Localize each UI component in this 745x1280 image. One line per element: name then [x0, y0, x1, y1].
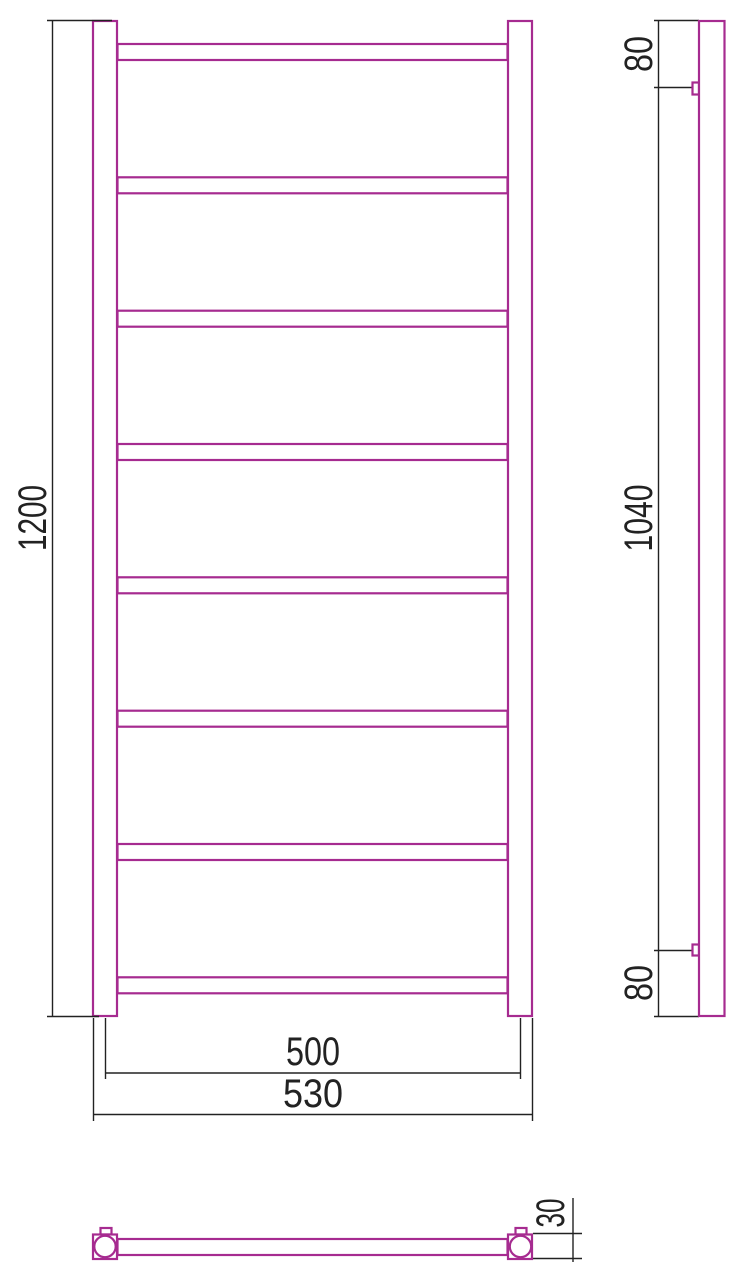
top-view: [93, 1228, 532, 1259]
post-section-circle: [94, 1236, 115, 1257]
post-section-circle: [510, 1236, 531, 1257]
rung: [118, 44, 508, 60]
dim-label-bottom-bracket-offset: 80: [617, 965, 661, 1001]
rung: [118, 844, 508, 860]
rung: [118, 711, 508, 727]
dim-label-overall-width: 530: [283, 1072, 343, 1116]
rung: [118, 444, 508, 460]
technical-drawing-page: 1200 500 530 80 1040 80: [0, 0, 745, 1280]
top-rail-bar: [118, 1239, 508, 1255]
left-post: [93, 21, 117, 1016]
dim-label-top-bracket-offset: 80: [617, 36, 661, 72]
dim-label-depth: 30: [529, 1199, 573, 1228]
technical-drawing-canvas: 1200 500 530 80 1040 80: [0, 0, 745, 1280]
front-view: [93, 21, 532, 1016]
dim-label-rail-pitch-width: 500: [286, 1030, 340, 1074]
rung: [118, 977, 508, 993]
rung: [118, 311, 508, 327]
right-post: [508, 21, 532, 1016]
side-view: [693, 21, 725, 1016]
dim-label-bracket-spacing: 1040: [617, 485, 661, 552]
side-post-tube: [699, 21, 725, 1016]
rung: [118, 577, 508, 593]
rung: [118, 177, 508, 193]
dim-label-height: 1200: [11, 485, 55, 551]
